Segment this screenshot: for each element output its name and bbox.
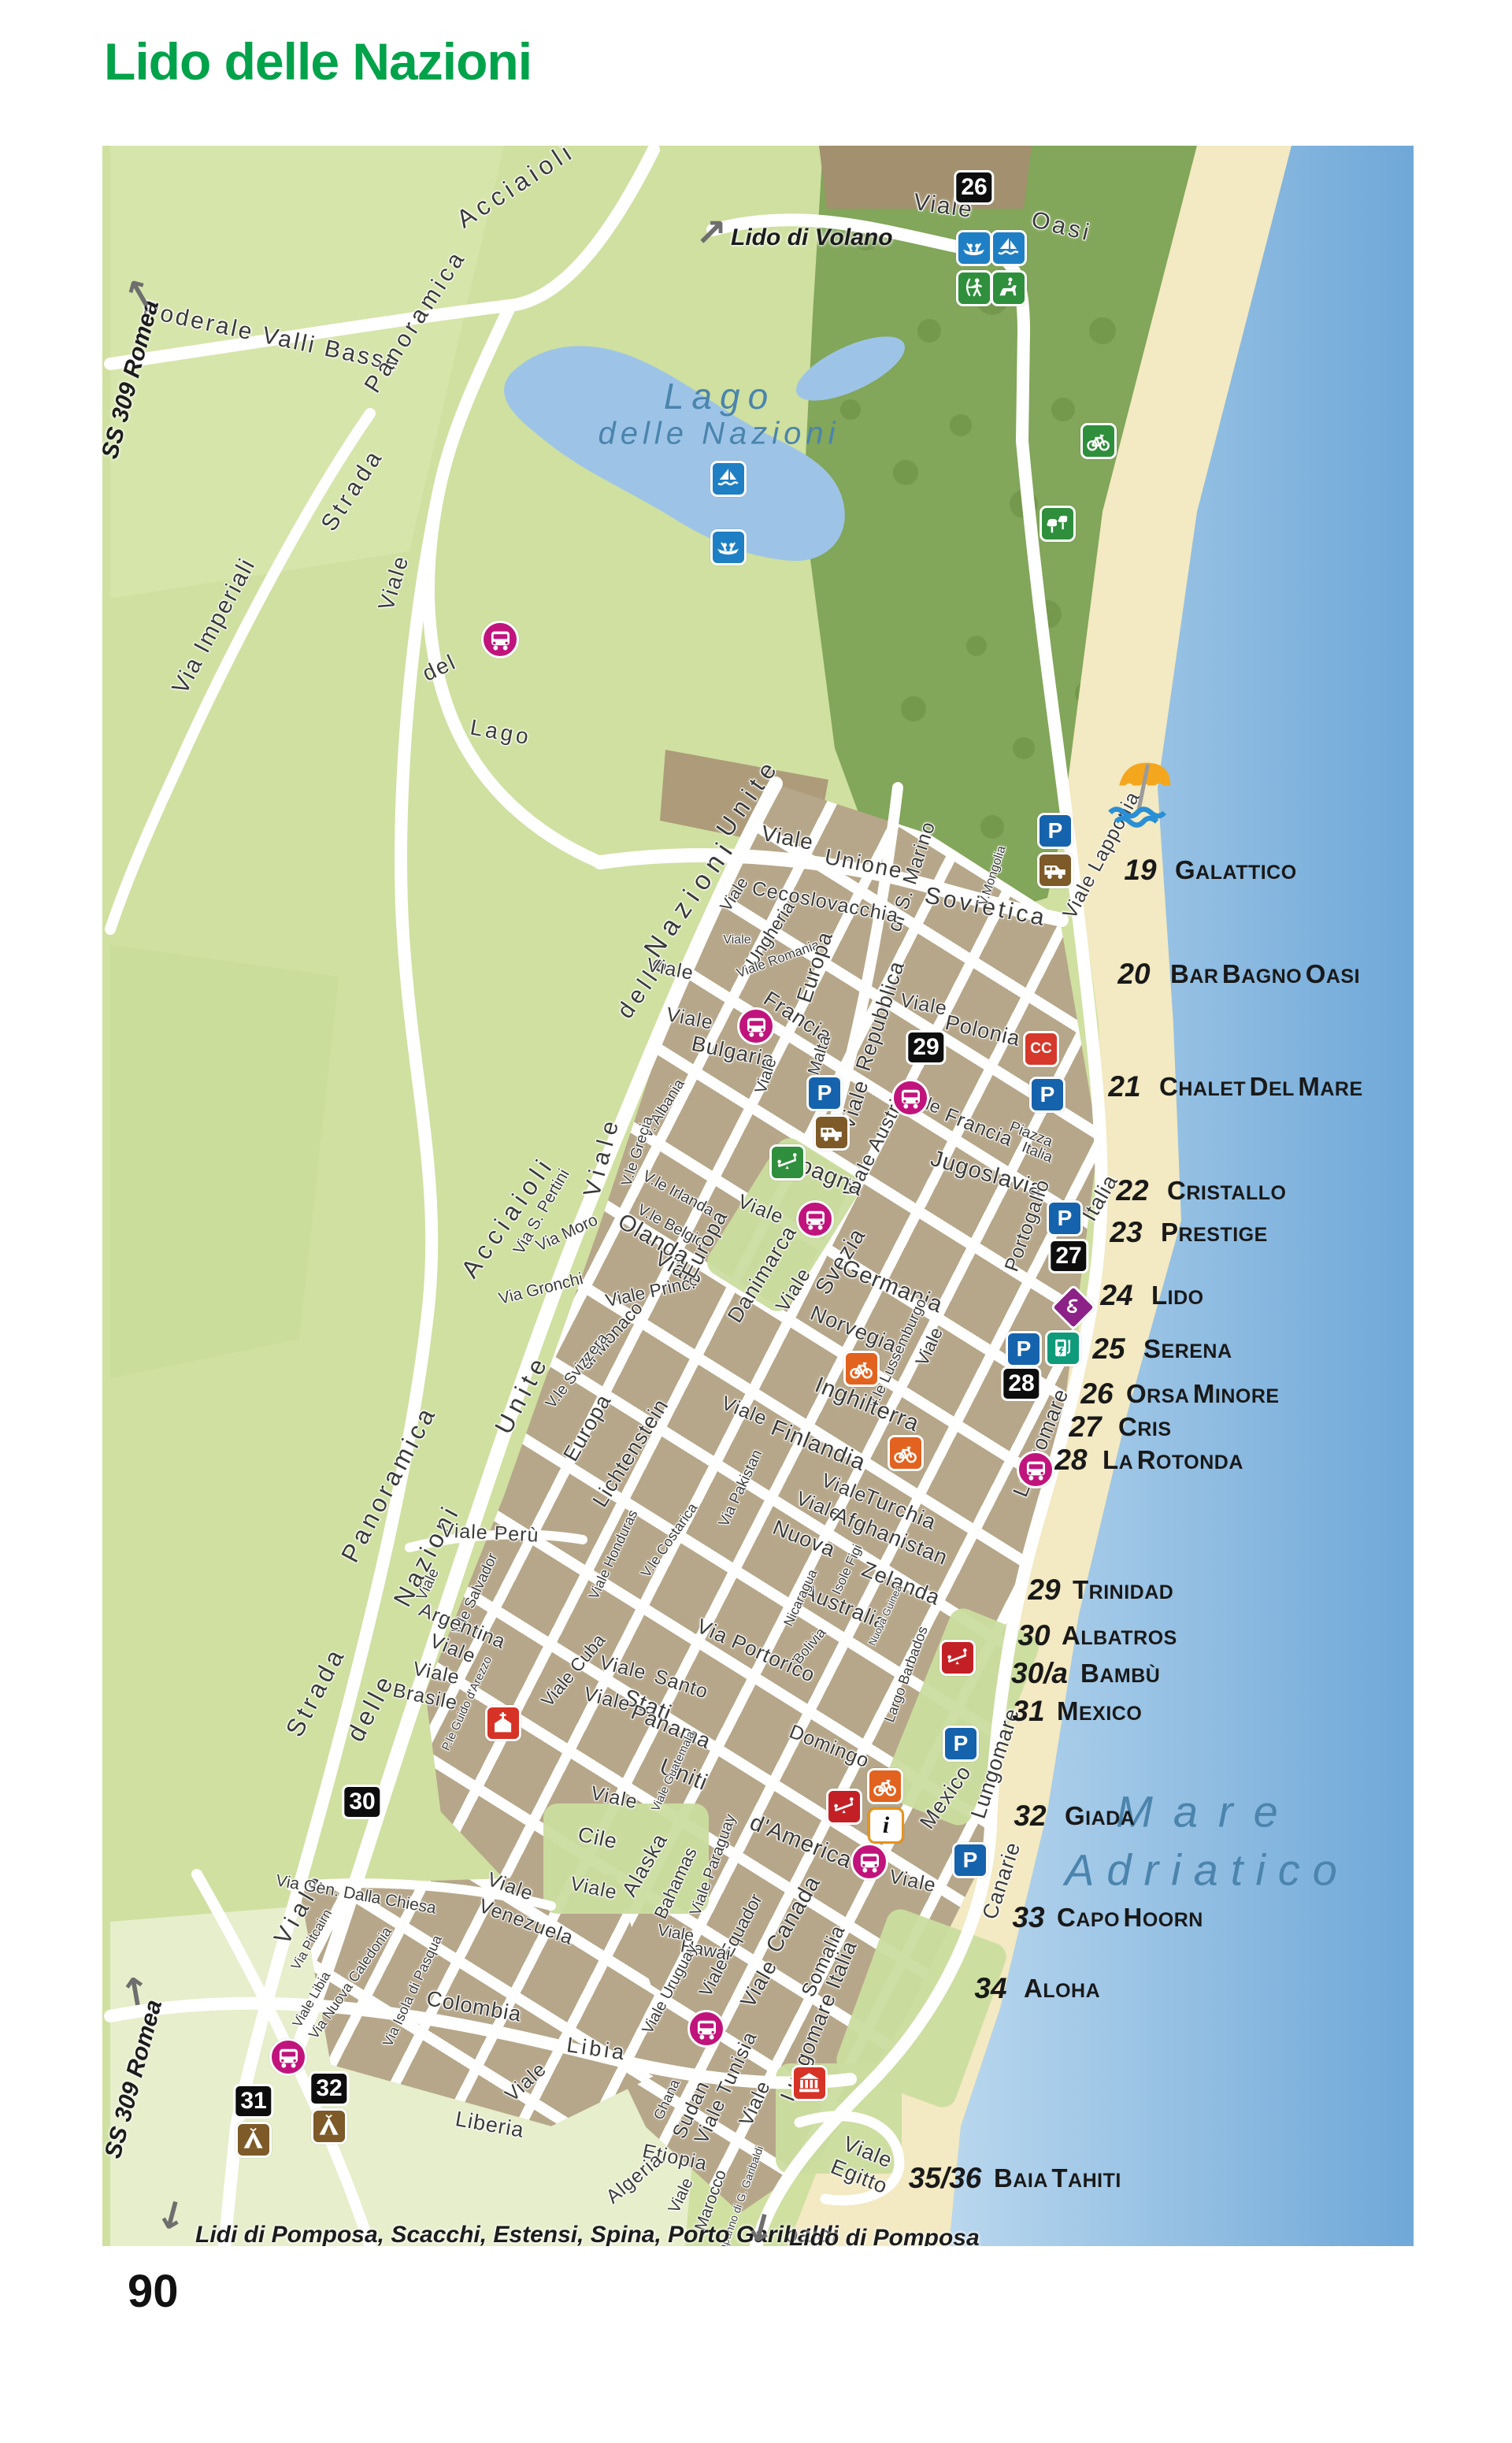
legend-number: 22 [1116,1174,1148,1207]
legend-name: Bar Bagno Oasi [1170,959,1360,989]
legend-number: 28 [1054,1444,1087,1477]
water-label: Lago [664,375,776,417]
canoe-icon [710,529,747,565]
bus-icon [796,1200,834,1238]
water-label: Adriatico [1065,1844,1350,1896]
horse-icon [991,270,1027,306]
parking-icon: P [1037,813,1073,849]
legend-name: Cristallo [1167,1176,1286,1206]
legend-name: Capo Hoorn [1057,1903,1203,1933]
sailing-icon [710,461,747,497]
legend-name: Albatros [1062,1621,1177,1651]
legend-number: 33 [1012,1901,1044,1934]
cyclepath-icon [1080,423,1117,459]
map-marker-30: 30 [342,1785,382,1819]
archery-icon [956,270,992,306]
info-icon: i [868,1807,904,1844]
parking-icon: P [806,1075,843,1111]
playground-red-icon [939,1640,976,1676]
offmap-label: Lido di Volano [731,224,893,251]
map-marker-31: 31 [233,2084,273,2119]
legend-number: 30 [1017,1619,1050,1652]
map-marker-29: 29 [906,1030,946,1065]
legend-name: Chalet del Mare [1159,1072,1363,1102]
bus-icon [850,1843,888,1881]
legend-number: 21 [1108,1070,1140,1103]
legend-number: 23 [1110,1216,1142,1249]
legend-number: 32 [1014,1800,1046,1833]
page-number: 90 [128,2265,179,2318]
legend-name: Giada [1065,1801,1135,1831]
bike-icon [843,1351,880,1387]
bus-icon [269,2038,307,2076]
map-marker-26: 26 [954,170,994,205]
legend-name: Galattico [1175,855,1297,885]
legend-name: Aloha [1024,1974,1100,2004]
legend-name: Mexico [1057,1696,1142,1726]
map-marker-28: 28 [1001,1366,1041,1401]
legend-number: 34 [974,1972,1006,2005]
camper-icon [1037,852,1073,888]
bus-icon [1017,1451,1054,1488]
legend-name: Lido [1151,1281,1204,1310]
direction-arrow-icon: ↗ [695,211,727,255]
playground-green-icon [769,1144,806,1181]
legend-number: 24 [1100,1279,1132,1312]
legend-number: 29 [1028,1574,1060,1607]
legend-number: 26 [1080,1377,1113,1411]
legend-name: Serena [1143,1334,1232,1364]
legend-number: 31 [1012,1695,1044,1728]
water-label: delle Nazioni [598,417,839,452]
parking-icon: P [952,1842,988,1878]
legend-name: Orsa Minore [1126,1379,1280,1409]
legend-name: Prestige [1161,1218,1268,1247]
cc-icon: CC [1023,1031,1059,1067]
legend-number: 30/a [1011,1657,1068,1690]
ev-icon [1045,1330,1081,1366]
canoe-icon [956,230,992,266]
bus-icon [891,1079,929,1117]
parking-icon: P [1029,1077,1065,1113]
legend-number: 27 [1069,1411,1101,1444]
parking-icon: P [1006,1331,1042,1367]
pinewood-icon [1039,506,1076,542]
page-title: Lido delle Nazioni [104,32,532,91]
legend-name: Trinidad [1073,1575,1173,1605]
camping-icon [235,2122,272,2158]
legend-number: 19 [1124,854,1156,887]
parking-icon: P [1047,1200,1083,1236]
offmap-label: Lido di Pomposa [789,2225,980,2246]
bike-icon [867,1768,903,1804]
legend-name: Bambù [1080,1659,1160,1689]
sailing-icon [991,230,1027,266]
legend-number: 25 [1092,1333,1125,1366]
bike-icon [888,1435,924,1471]
bus-icon [481,621,519,658]
beach-umbrella-icon [1104,752,1177,831]
monument-icon [791,2065,828,2101]
bus-icon [687,2010,725,2048]
map-marker-32: 32 [309,2071,349,2106]
bus-icon [737,1007,775,1045]
parking-icon: P [943,1726,979,1762]
camping-icon [311,2108,347,2145]
legend-name: Cris [1118,1412,1172,1442]
playground-red-icon [826,1789,862,1825]
camper-icon [813,1114,850,1151]
church-icon [485,1705,521,1741]
legend-number: 20 [1117,958,1150,991]
legend-name: La Rotonda [1102,1445,1243,1475]
legend-name: Baia Tahiti [994,2163,1121,2193]
legend-number: 35/36 [909,2162,982,2195]
water-label: Mare [1116,1786,1299,1837]
map-marker-27: 27 [1048,1239,1088,1273]
street-label: Viale [723,933,750,947]
map: VialeOasiAcciaioliPoderale Valli BassePa… [102,146,1414,2246]
